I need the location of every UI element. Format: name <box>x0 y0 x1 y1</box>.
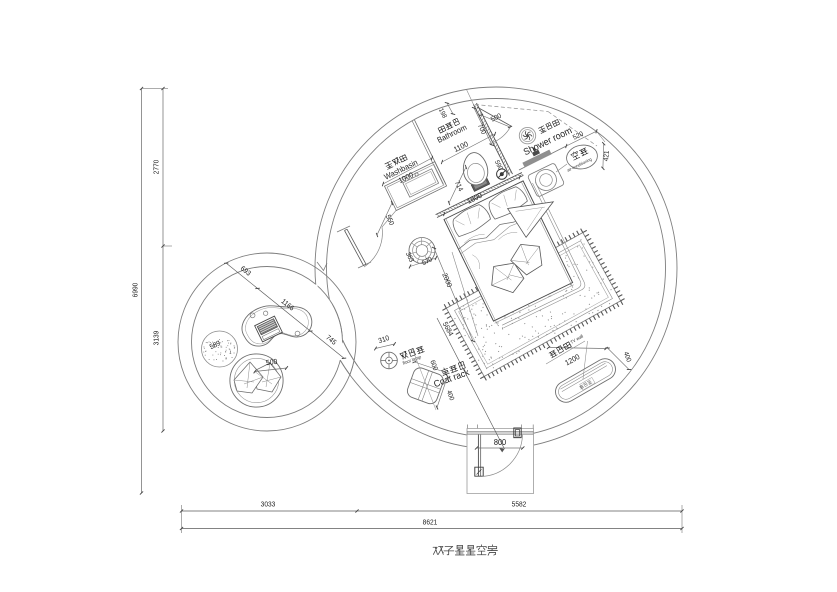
svg-text:8621: 8621 <box>423 519 438 526</box>
svg-text:3033: 3033 <box>261 501 276 508</box>
svg-text:800: 800 <box>494 438 506 447</box>
svg-text:2770: 2770 <box>153 159 160 174</box>
svg-text:5582: 5582 <box>512 501 527 508</box>
svg-text:6990: 6990 <box>132 282 139 297</box>
svg-text:421: 421 <box>603 150 611 161</box>
svg-text:3139: 3139 <box>153 330 160 345</box>
svg-text:500: 500 <box>266 358 278 368</box>
